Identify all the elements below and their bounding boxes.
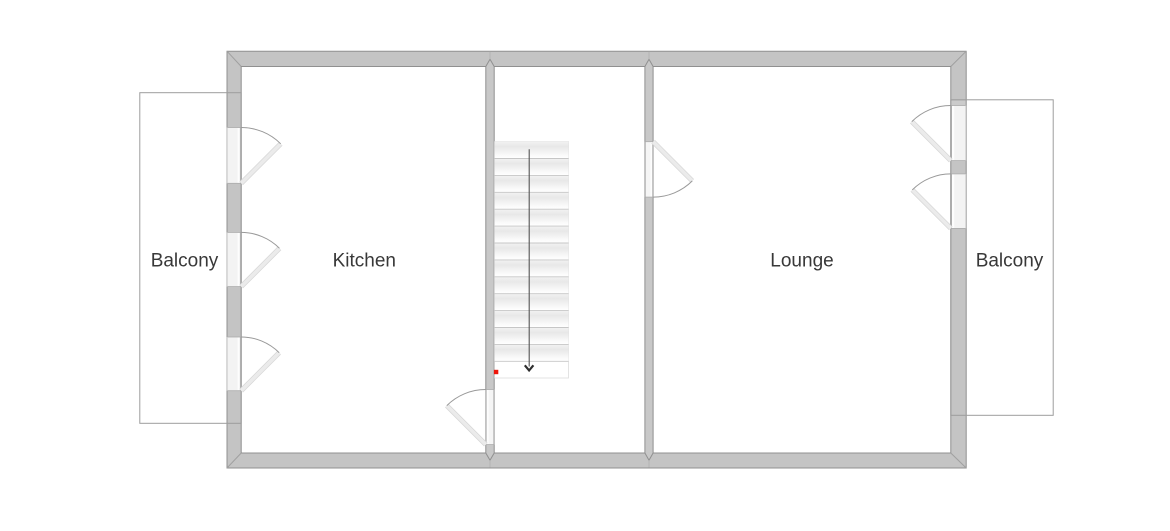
svg-text:Balcony: Balcony (976, 251, 1044, 272)
svg-text:Balcony: Balcony (151, 251, 219, 272)
svg-text:Kitchen: Kitchen (333, 251, 396, 272)
svg-text:Lounge: Lounge (770, 251, 833, 272)
